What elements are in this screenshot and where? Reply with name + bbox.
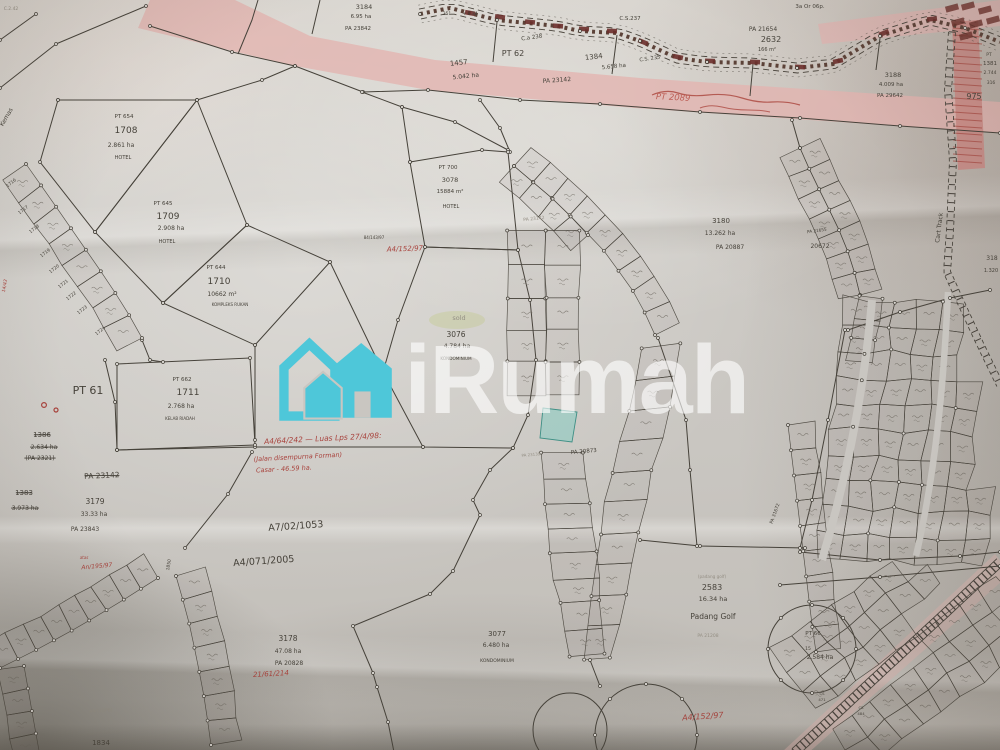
parcel-boundary (163, 225, 330, 345)
map-label: 3078 (442, 176, 459, 184)
parcel-cell (794, 473, 822, 501)
survey-point (544, 229, 547, 232)
survey-point (397, 319, 400, 322)
map-label: PA 23843 (71, 526, 100, 533)
survey-point (517, 249, 520, 252)
survey-point (513, 165, 516, 168)
survey-point (139, 587, 142, 590)
survey-point (787, 424, 790, 427)
map-label: 3188 (885, 71, 902, 79)
survey-point (52, 639, 55, 642)
survey-point (532, 181, 535, 184)
map-label: 1834 (92, 739, 110, 747)
survey-point (811, 692, 814, 695)
map-label: PT 61 (73, 384, 104, 397)
map-label: PT 2089 (656, 92, 691, 104)
parcel-cell (208, 718, 242, 745)
map-label: 1721 (57, 278, 70, 290)
building-block (673, 54, 684, 61)
survey-point (599, 685, 602, 688)
survey-point (838, 229, 841, 232)
survey-point (114, 292, 117, 295)
map-label: 1.320 (984, 268, 998, 274)
survey-point (419, 13, 422, 16)
map-graphic (58, 66, 295, 100)
survey-point (254, 439, 257, 442)
map-label: HOTEL (159, 239, 176, 245)
survey-point (640, 347, 643, 350)
survey-point (196, 99, 199, 102)
map-label: 2583 (702, 583, 722, 592)
map-label: 4.784 ha (444, 343, 471, 350)
map-label: 1711 (177, 388, 200, 398)
map-label: 15884 m² (437, 188, 464, 195)
map-graphic (402, 107, 508, 150)
survey-point (545, 296, 548, 299)
survey-point (551, 197, 554, 200)
survey-point (145, 5, 148, 8)
survey-map-photo: C.2.4231846.95 haPA 23842351+ 8.34C.a 23… (0, 0, 1000, 750)
parcel-cell (507, 299, 547, 331)
map-label: 13.262 ha (705, 230, 736, 237)
survey-point (122, 598, 125, 601)
parcel-cell (507, 231, 546, 265)
map-label: HOTEL (115, 155, 132, 161)
survey-point (210, 744, 213, 747)
survey-point (790, 449, 793, 452)
map-label: A4/C(DPB) (89, 707, 113, 714)
survey-point (587, 234, 590, 237)
survey-point (811, 625, 814, 628)
survey-point (887, 326, 890, 329)
map-graphic (792, 120, 800, 148)
parcel-cell (613, 438, 663, 473)
map-label: (padang golf) (698, 574, 727, 579)
map-label: CS (858, 705, 864, 710)
map-label: PA 20887 (716, 244, 745, 251)
map-label: 3184 (356, 3, 373, 11)
survey-point (899, 311, 902, 314)
map-label: PT 644 (207, 265, 226, 271)
map-label: 2.861 ha (108, 142, 135, 149)
survey-point (645, 683, 648, 686)
survey-point (529, 299, 532, 302)
trail-hatch (949, 281, 954, 283)
parcel-cell (541, 453, 586, 480)
survey-point (793, 474, 796, 477)
map-graphic (0, 6, 146, 88)
map-label: Casar - 46.59 ha. (256, 464, 312, 475)
survey-point (595, 550, 598, 553)
survey-point (844, 329, 847, 332)
survey-point (949, 297, 952, 300)
map-label: 1850 (165, 559, 173, 571)
survey-point (352, 625, 355, 628)
map-label: 6.480 ha (483, 642, 510, 649)
map-label: C.S. 235 (639, 55, 661, 64)
parcel-cell (544, 231, 580, 266)
parcel-cell (508, 265, 546, 299)
survey-point (767, 648, 770, 651)
survey-point (811, 604, 814, 607)
survey-point (598, 599, 601, 602)
map-label: PA 21654 (749, 26, 778, 33)
survey-point (869, 479, 872, 482)
survey-point (116, 449, 119, 452)
survey-point (936, 539, 939, 542)
map-label: PA 23142 (523, 215, 545, 223)
survey-point (899, 125, 902, 128)
map-label: 2.584 ha (807, 654, 834, 661)
survey-point (639, 40, 642, 43)
map-label: 15 (805, 646, 811, 652)
survey-point (599, 103, 602, 106)
parcel-cell (620, 407, 670, 442)
survey-point (578, 229, 581, 232)
map-label: 1709 (157, 212, 180, 222)
survey-point (198, 670, 201, 673)
survey-point (643, 311, 646, 314)
trail-hatch (956, 298, 961, 300)
survey-point (519, 99, 522, 102)
survey-point (689, 469, 692, 472)
building-block (553, 23, 563, 28)
map-label: 3076 (446, 330, 465, 339)
survey-point (128, 314, 131, 317)
survey-point (17, 657, 20, 660)
parcel-cell (544, 479, 590, 504)
trail-hatch (964, 314, 969, 317)
trail-hatch (987, 363, 992, 366)
map-label: 471 (818, 697, 826, 702)
survey-point (55, 43, 58, 46)
survey-point (989, 289, 992, 292)
survey-point (890, 348, 893, 351)
survey-point (959, 555, 962, 558)
survey-point (802, 550, 805, 553)
survey-point (162, 361, 165, 364)
map-label: KOMPLEKS RUKAN (212, 302, 249, 307)
survey-point (227, 493, 230, 496)
survey-point (669, 405, 672, 408)
map-graphic (353, 448, 513, 750)
survey-point (650, 469, 653, 472)
survey-point (184, 547, 187, 550)
survey-point (827, 419, 830, 422)
survey-point (193, 646, 196, 649)
survey-point (329, 261, 332, 264)
survey-point (860, 379, 863, 382)
survey-point (578, 360, 581, 363)
map-label: 3180 (712, 217, 730, 225)
map-graphic (640, 540, 805, 548)
survey-point (452, 570, 455, 573)
survey-point (855, 648, 858, 651)
survey-point (879, 35, 882, 38)
survey-point (372, 672, 375, 675)
parcel-cell (546, 329, 580, 362)
map-label: A4/071/2005 (233, 554, 295, 569)
map-label: PA 31672 (769, 503, 782, 525)
map-label: KELAB RIADAH (165, 416, 195, 421)
red-mark (54, 408, 58, 412)
survey-point (181, 598, 184, 601)
survey-point (808, 600, 811, 603)
map-label: 14/43 (1, 279, 9, 293)
survey-point (893, 506, 896, 509)
trail-hatch (953, 289, 958, 291)
survey-point (706, 61, 709, 64)
survey-point (617, 269, 620, 272)
survey-point (608, 656, 611, 659)
survey-point (608, 697, 611, 700)
map-graphic (590, 660, 600, 686)
survey-point (294, 65, 297, 68)
survey-point (479, 99, 482, 102)
trail-hatch (972, 330, 977, 333)
parcel-cell (553, 578, 600, 603)
survey-point (842, 679, 845, 682)
survey-point (808, 167, 811, 170)
map-label: atas (80, 555, 89, 560)
survey-point (853, 271, 856, 274)
survey-point (249, 357, 252, 360)
survey-point (893, 301, 896, 304)
survey-point (594, 734, 597, 737)
parcel-cell (547, 298, 579, 329)
map-label: 84/143/97 (364, 235, 385, 240)
survey-point (805, 575, 808, 578)
survey-point (657, 337, 660, 340)
survey-point (206, 719, 209, 722)
survey-point (590, 595, 593, 598)
survey-point (0, 87, 2, 90)
survey-point (26, 687, 29, 690)
survey-point (454, 121, 457, 124)
survey-point (188, 622, 191, 625)
survey-point (496, 19, 499, 22)
survey-point (57, 99, 60, 102)
survey-point (569, 215, 572, 218)
map-label: (Jalan disempurna Forman) (253, 451, 342, 464)
parcel-cell (878, 404, 905, 433)
survey-point (779, 679, 782, 682)
parcel-cell (565, 628, 605, 656)
survey-point (811, 499, 814, 502)
map-label: 166 m² (758, 47, 776, 53)
survey-point (791, 119, 794, 122)
survey-point (548, 552, 551, 555)
map-label: PA 23842 (345, 26, 371, 32)
parcel-cell (898, 460, 922, 485)
survey-point (583, 658, 586, 661)
survey-point (34, 732, 37, 735)
survey-point (828, 208, 831, 211)
survey-point (25, 163, 28, 166)
parcel-cell (947, 462, 975, 491)
building-block (525, 19, 535, 25)
map-label: 1381 (983, 61, 997, 67)
parcel-cell (507, 331, 547, 362)
building-block (607, 29, 617, 34)
survey-point (35, 13, 38, 16)
map-graphic (480, 100, 510, 152)
survey-point (527, 414, 530, 417)
map-label: 10662 m² (207, 291, 237, 298)
map-label: 2.768 ha (168, 403, 195, 410)
survey-point (559, 601, 562, 604)
survey-point (506, 229, 509, 232)
survey-point (114, 401, 117, 404)
map-label: CS (819, 691, 825, 696)
survey-point (600, 533, 603, 536)
survey-point (0, 39, 2, 42)
survey-point (874, 339, 877, 342)
parcel-cell (596, 532, 638, 564)
survey-point (699, 111, 702, 114)
parcel-cell (550, 551, 600, 580)
survey-point (637, 531, 640, 534)
survey-point (55, 205, 58, 208)
survey-point (472, 499, 475, 502)
map-label: 484 (857, 711, 865, 716)
parcel-cell (890, 537, 917, 565)
survey-point (696, 545, 699, 548)
map-label: A4/152/97 (681, 711, 725, 723)
map-label: 1722 (65, 290, 78, 302)
survey-point (941, 300, 944, 303)
survey-point (481, 149, 484, 152)
map-label: 3178 (278, 634, 297, 643)
map-label: C.2.42 (4, 6, 19, 12)
parcel-cell (561, 600, 603, 631)
survey-point (846, 250, 849, 253)
survey-point (863, 352, 866, 355)
survey-point (685, 419, 688, 422)
map-label: 20672 (810, 243, 829, 250)
survey-point (23, 665, 26, 668)
survey-point (507, 151, 510, 154)
survey-point (105, 609, 108, 612)
survey-point (427, 89, 430, 92)
parcel-cell (840, 533, 868, 561)
map-label: A4/152/97 (386, 244, 424, 253)
survey-point (696, 734, 699, 737)
survey-point (254, 344, 257, 347)
parcel-cell (904, 404, 932, 433)
survey-point (261, 79, 264, 82)
map-label: 351 (443, 11, 452, 17)
survey-point (489, 469, 492, 472)
map-graphic (362, 92, 410, 162)
survey-point (506, 360, 509, 363)
survey-point (964, 27, 967, 30)
map-label: PT 662 (173, 377, 192, 383)
map-label: 1708 (115, 126, 138, 136)
map-label: An/195/97 (80, 562, 113, 572)
survey-point (149, 359, 152, 362)
survey-point (681, 697, 684, 700)
survey-point (40, 184, 43, 187)
map-label: A4/64/242 — Luas Lps 27/4/98: (263, 431, 382, 446)
survey-point (376, 686, 379, 689)
survey-point (175, 575, 178, 578)
map-label: + 8.34 (462, 11, 477, 17)
map-label: PT 654 (115, 114, 134, 120)
map-label: 1384 (585, 52, 604, 62)
survey-point (902, 432, 905, 435)
map-label: PT 645 (154, 201, 173, 207)
survey-point (499, 127, 502, 130)
survey-point (611, 471, 614, 474)
trail-hatch (975, 338, 980, 341)
map-label: PT 66 (805, 631, 821, 637)
survey-point (577, 296, 580, 299)
map-label: 318 (986, 255, 998, 262)
map-label: 3077 (488, 630, 506, 638)
survey-point (799, 547, 802, 550)
survey-point (506, 297, 509, 300)
survey-point (579, 30, 582, 33)
building-block (833, 58, 844, 65)
survey-point (88, 619, 91, 622)
map-label: Cart Track (934, 212, 945, 243)
survey-point (401, 106, 404, 109)
parcel-boundary (410, 150, 518, 250)
survey-point (699, 545, 702, 548)
map-svg: C.2.4231846.95 haPA 23842351+ 8.34C.a 23… (0, 0, 1000, 750)
survey-point (879, 576, 882, 579)
map-graphic (105, 360, 117, 450)
survey-point (921, 483, 924, 486)
parcel-cell (937, 540, 966, 565)
survey-point (799, 147, 802, 150)
survey-point (639, 539, 642, 542)
survey-point (162, 302, 165, 305)
map-label: 16.34 ha (699, 595, 728, 603)
parcel-cell (956, 382, 983, 412)
survey-point (625, 593, 628, 596)
survey-point (0, 667, 2, 670)
survey-point (954, 407, 957, 410)
map-label: sold (452, 314, 465, 322)
map-label: C.S.237 (619, 16, 641, 22)
trail-hatch (995, 379, 1000, 382)
survey-point (867, 532, 870, 535)
survey-point (654, 334, 657, 337)
survey-point (544, 503, 547, 506)
survey-point (842, 616, 845, 619)
survey-point (796, 499, 799, 502)
map-label: 316 (987, 80, 996, 86)
survey-point (879, 559, 882, 562)
survey-point (852, 425, 855, 428)
trail-hatch (968, 322, 973, 325)
map-label: Padang Golf (690, 612, 736, 621)
survey-point (409, 161, 412, 164)
parcel-cell (629, 376, 674, 411)
survey-point (70, 227, 73, 230)
survey-point (881, 297, 884, 300)
survey-point (30, 710, 33, 713)
map-label: Kemas (0, 107, 15, 128)
survey-point (602, 249, 605, 252)
survey-point (94, 231, 97, 234)
highlighted-parcel (540, 408, 577, 442)
parcel-cell (545, 503, 592, 529)
survey-point (779, 616, 782, 619)
survey-point (99, 270, 102, 273)
